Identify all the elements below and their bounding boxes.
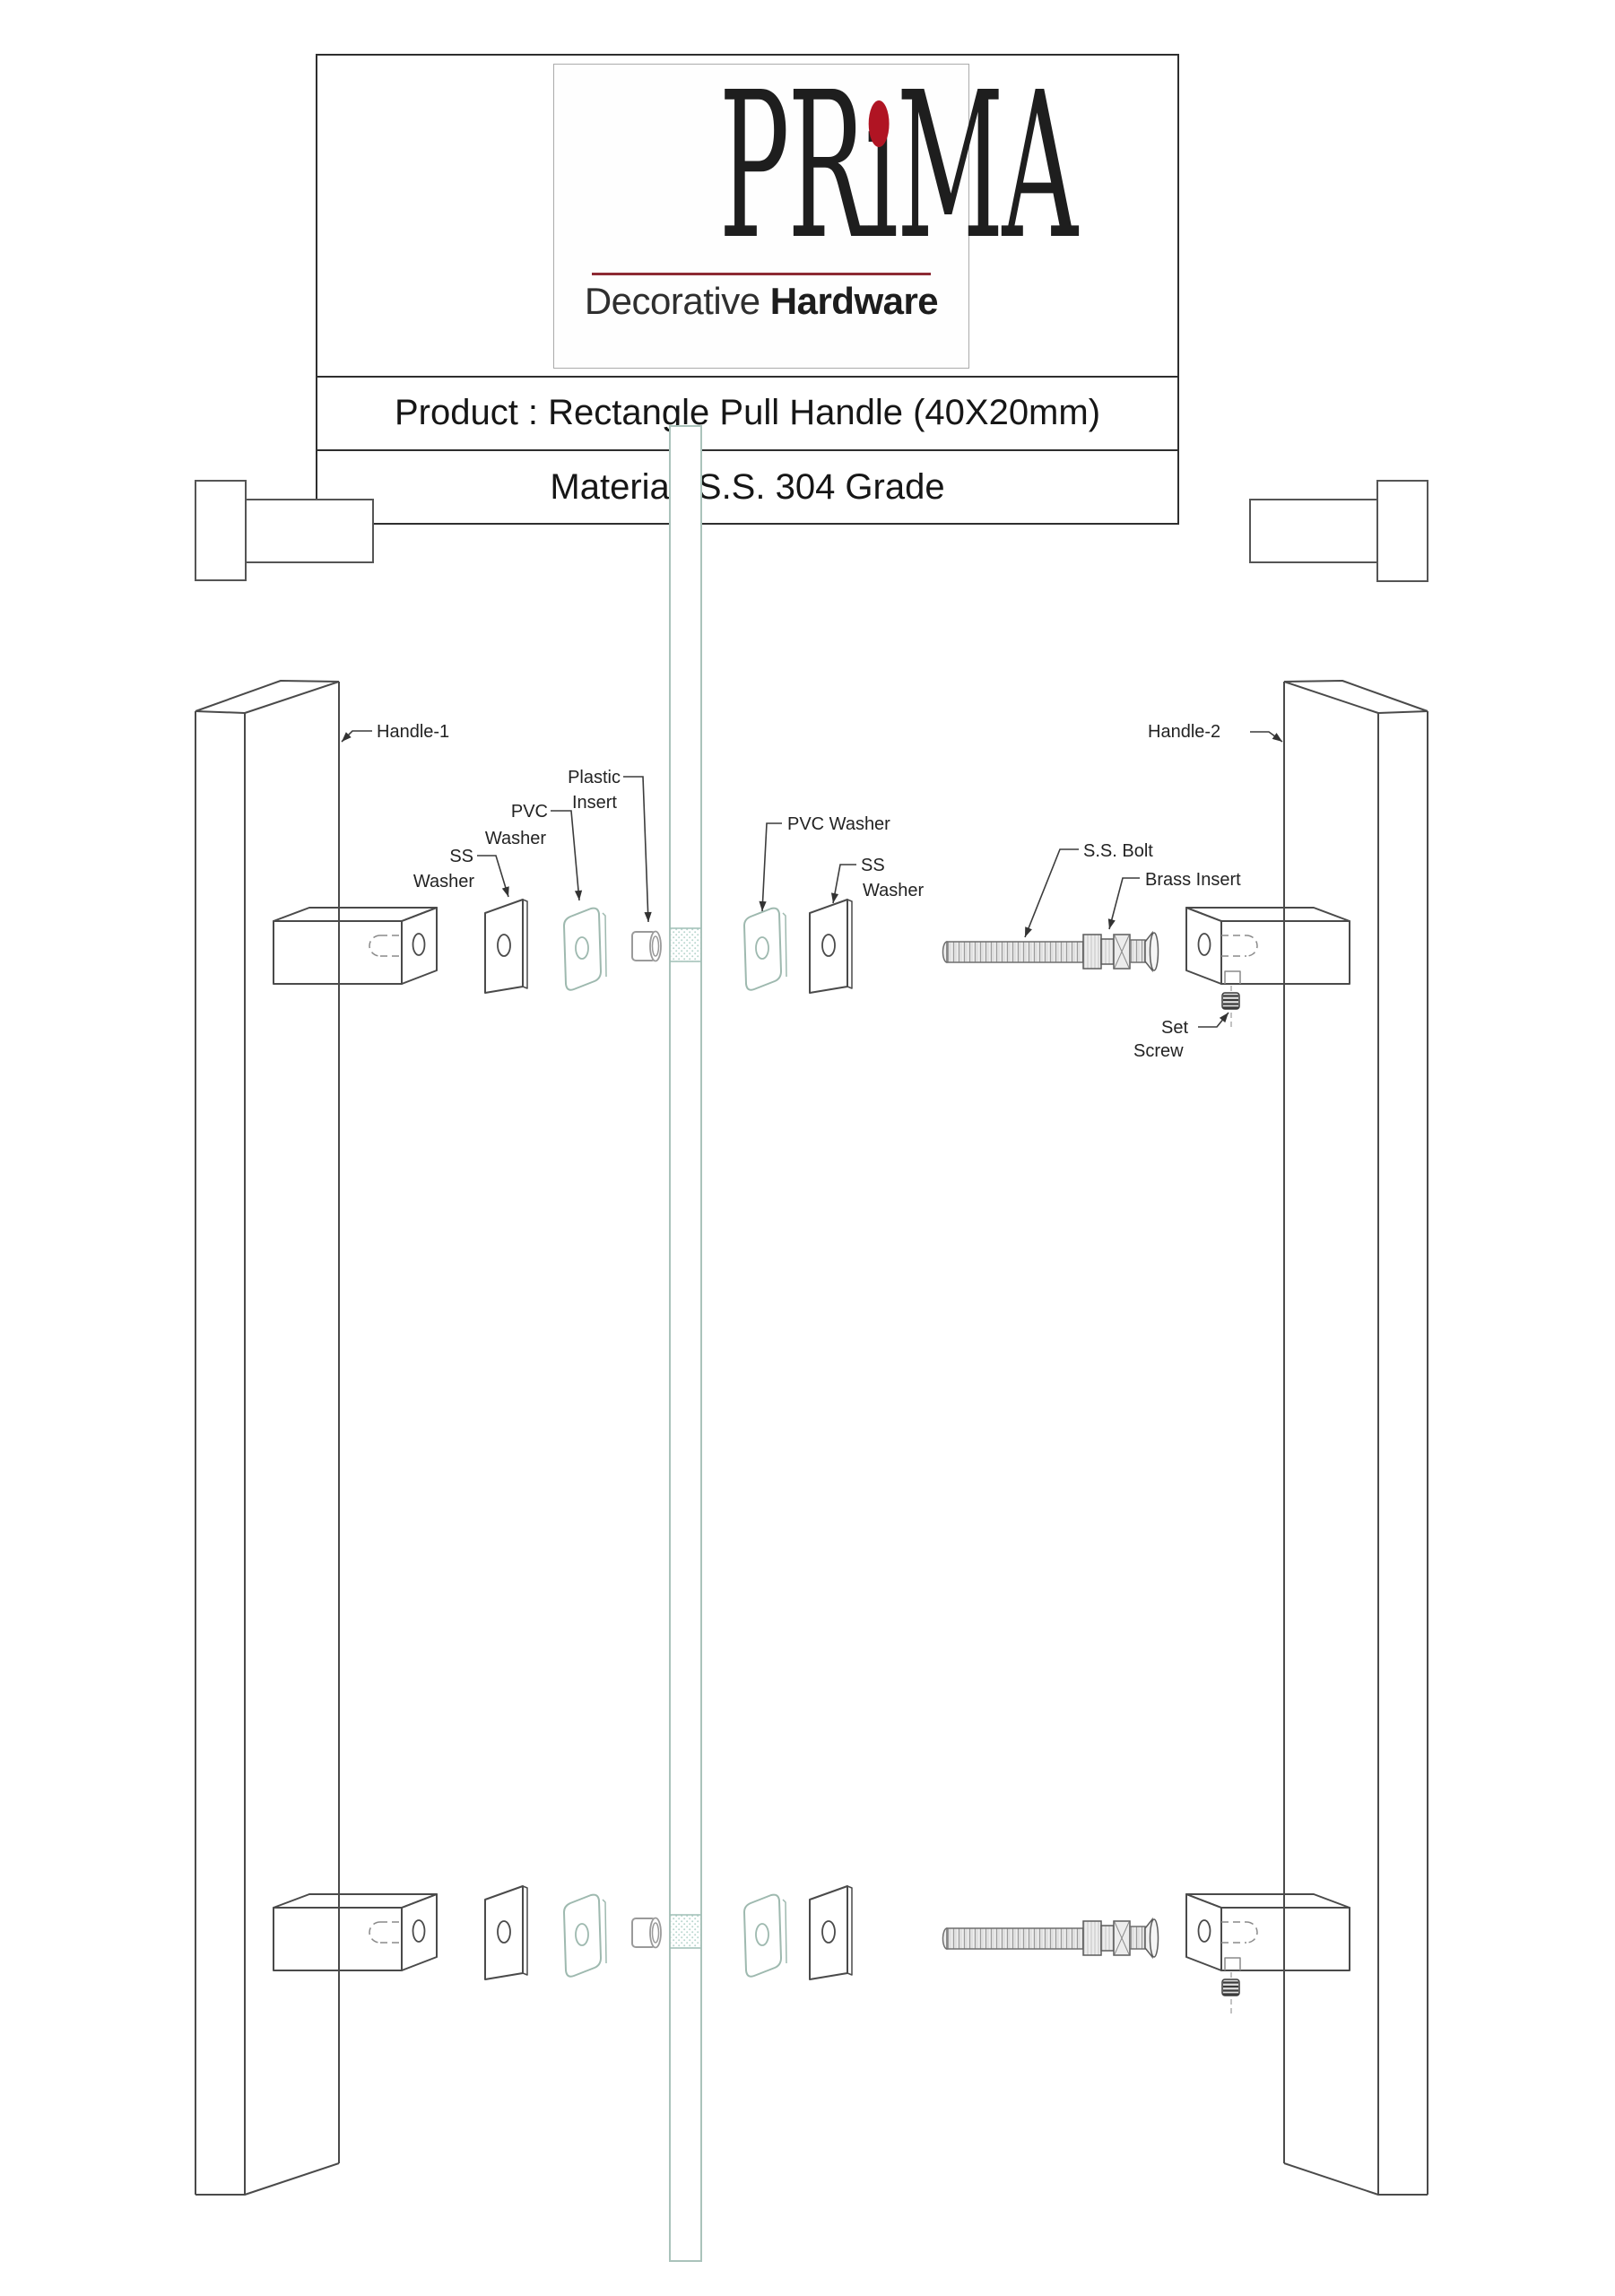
pvc-washer-right-label: PVC Washer: [787, 814, 890, 834]
ss-washer-left-label-line1: SS: [449, 847, 473, 866]
ss-washer-left-label-line2: Washer: [413, 872, 475, 891]
brass-insert-label: Brass Insert: [1145, 870, 1241, 890]
ss-bolt-with-brass-insert-bottom: [943, 1919, 1159, 1957]
ss-bolt-label: S.S. Bolt: [1083, 841, 1153, 861]
pvc-washer-left-leader: [551, 811, 579, 900]
drawing-sheet: PRıMA Decorative Hardware Product : Rect…: [0, 0, 1615, 2296]
ss-washer-left-bottom: [485, 1886, 527, 1979]
handle1-standoff-block-top: [274, 908, 437, 984]
ss-washer-left-top: [485, 900, 527, 993]
handle2-leader: [1250, 732, 1282, 742]
handle2-standoff-block-bottom: [1186, 1894, 1350, 1970]
handle1-label: Handle-1: [377, 722, 449, 742]
ss-washer-right-label-line1: SS: [861, 856, 885, 875]
handle1-end-cap: [195, 481, 373, 580]
set-screw-bottom: [1222, 1972, 1239, 2014]
pvc-washer-right-bottom: [744, 1895, 786, 1977]
handle1-standoff-block-bottom: [274, 1894, 437, 1970]
ss-bolt-with-brass-insert-top: [943, 933, 1159, 970]
ss-washer-right-label-line2: Washer: [863, 881, 925, 900]
plastic-insert-label-line2: Insert: [572, 793, 617, 813]
ss-washer-left-leader: [477, 856, 508, 897]
pvc-washer-right-leader: [762, 823, 782, 911]
plastic-insert-label-line1: Plastic: [568, 768, 621, 787]
glass-hole-bottom: [670, 1915, 701, 1948]
pvc-washer-left-label-line1: PVC: [511, 802, 548, 822]
handle2-standoff-block-top: [1186, 908, 1350, 984]
pvc-washer-left-top: [564, 909, 606, 990]
exploded-assembly-drawing: Handle-1 Plastic Insert PVC Washer SS Wa…: [0, 0, 1615, 2296]
ss-washer-right-top: [810, 900, 852, 993]
plastic-insert-leader: [623, 777, 648, 922]
handle2-end-cap: [1250, 481, 1428, 581]
pvc-washer-right-top: [744, 909, 786, 990]
plastic-insert-bottom: [632, 1918, 661, 1948]
handle2-label: Handle-2: [1148, 722, 1220, 742]
glass-hole-top: [670, 928, 701, 961]
brass-insert-leader: [1109, 878, 1140, 929]
pvc-washer-left-label-line2: Washer: [485, 829, 547, 848]
ss-bolt-leader: [1025, 849, 1079, 937]
set-screw-leader: [1198, 1013, 1229, 1027]
glass-panel: [670, 426, 701, 2261]
set-screw-label-line1: Set: [1161, 1018, 1188, 1038]
handle1-leader: [342, 731, 372, 742]
set-screw-label-line2: Screw: [1133, 1041, 1184, 1061]
set-screw-top: [1222, 986, 1239, 1028]
plastic-insert-top: [632, 932, 661, 961]
pvc-washer-left-bottom: [564, 1895, 606, 1977]
ss-washer-right-bottom: [810, 1886, 852, 1979]
ss-washer-right-leader: [833, 865, 856, 903]
